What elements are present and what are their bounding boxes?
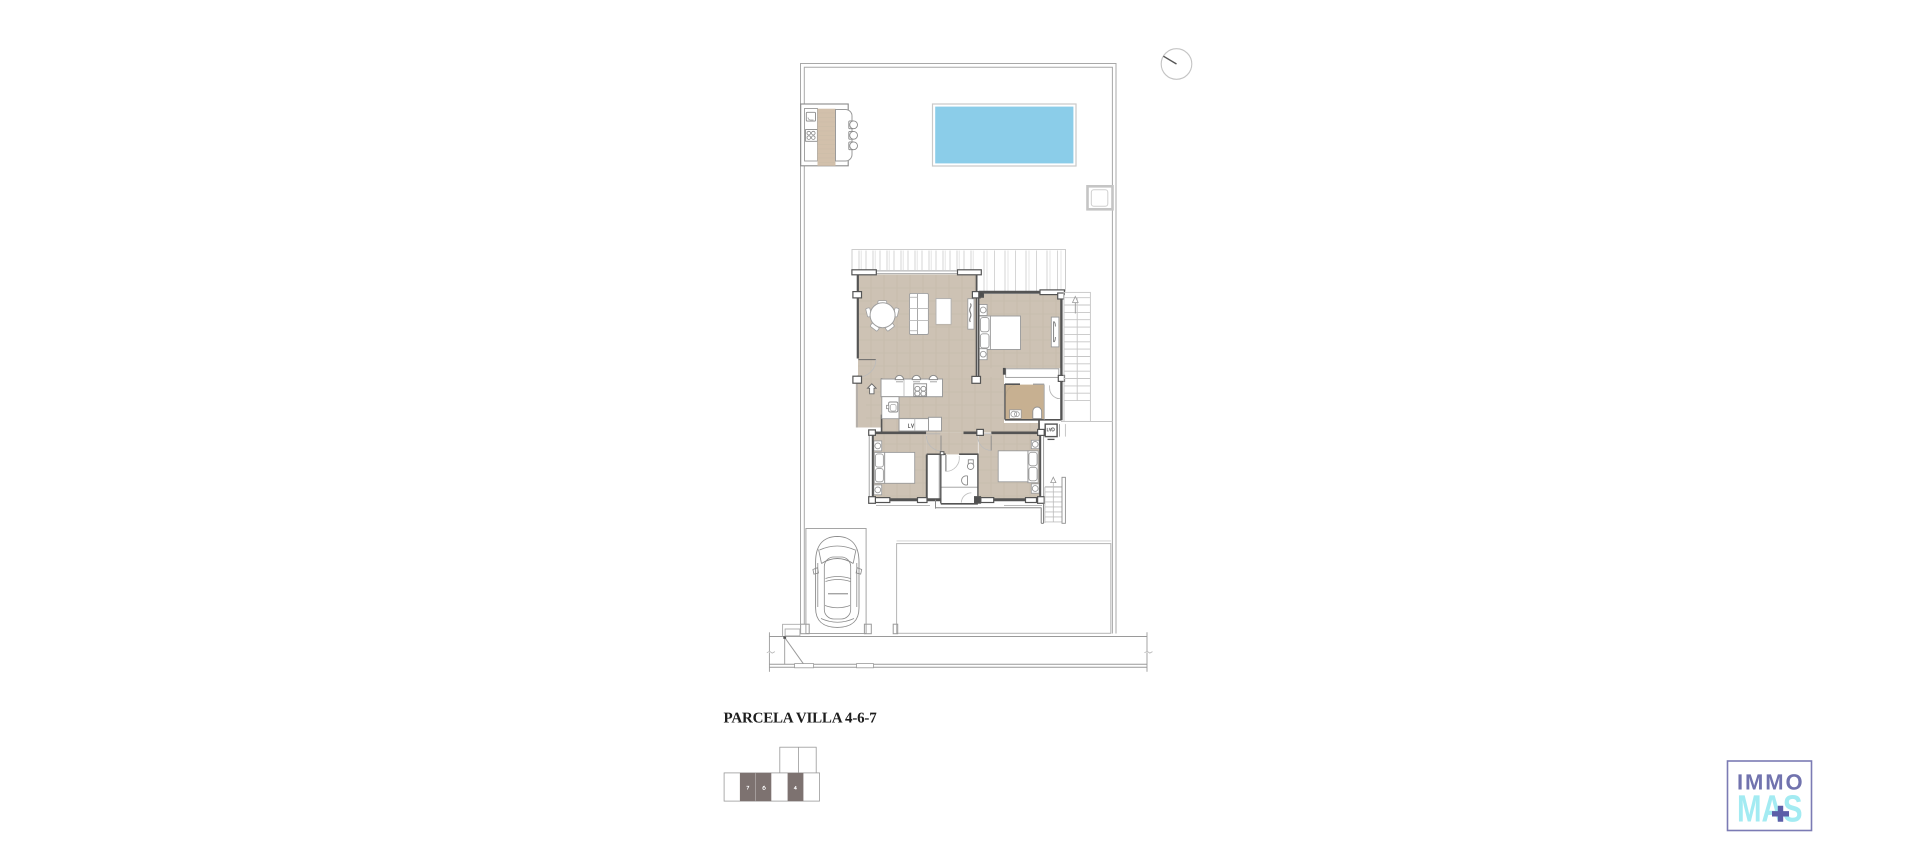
svg-text:PARCELA VILLA 4-6-7: PARCELA VILLA 4-6-7 <box>724 710 878 726</box>
svg-text:MAS: MAS <box>1737 789 1803 831</box>
